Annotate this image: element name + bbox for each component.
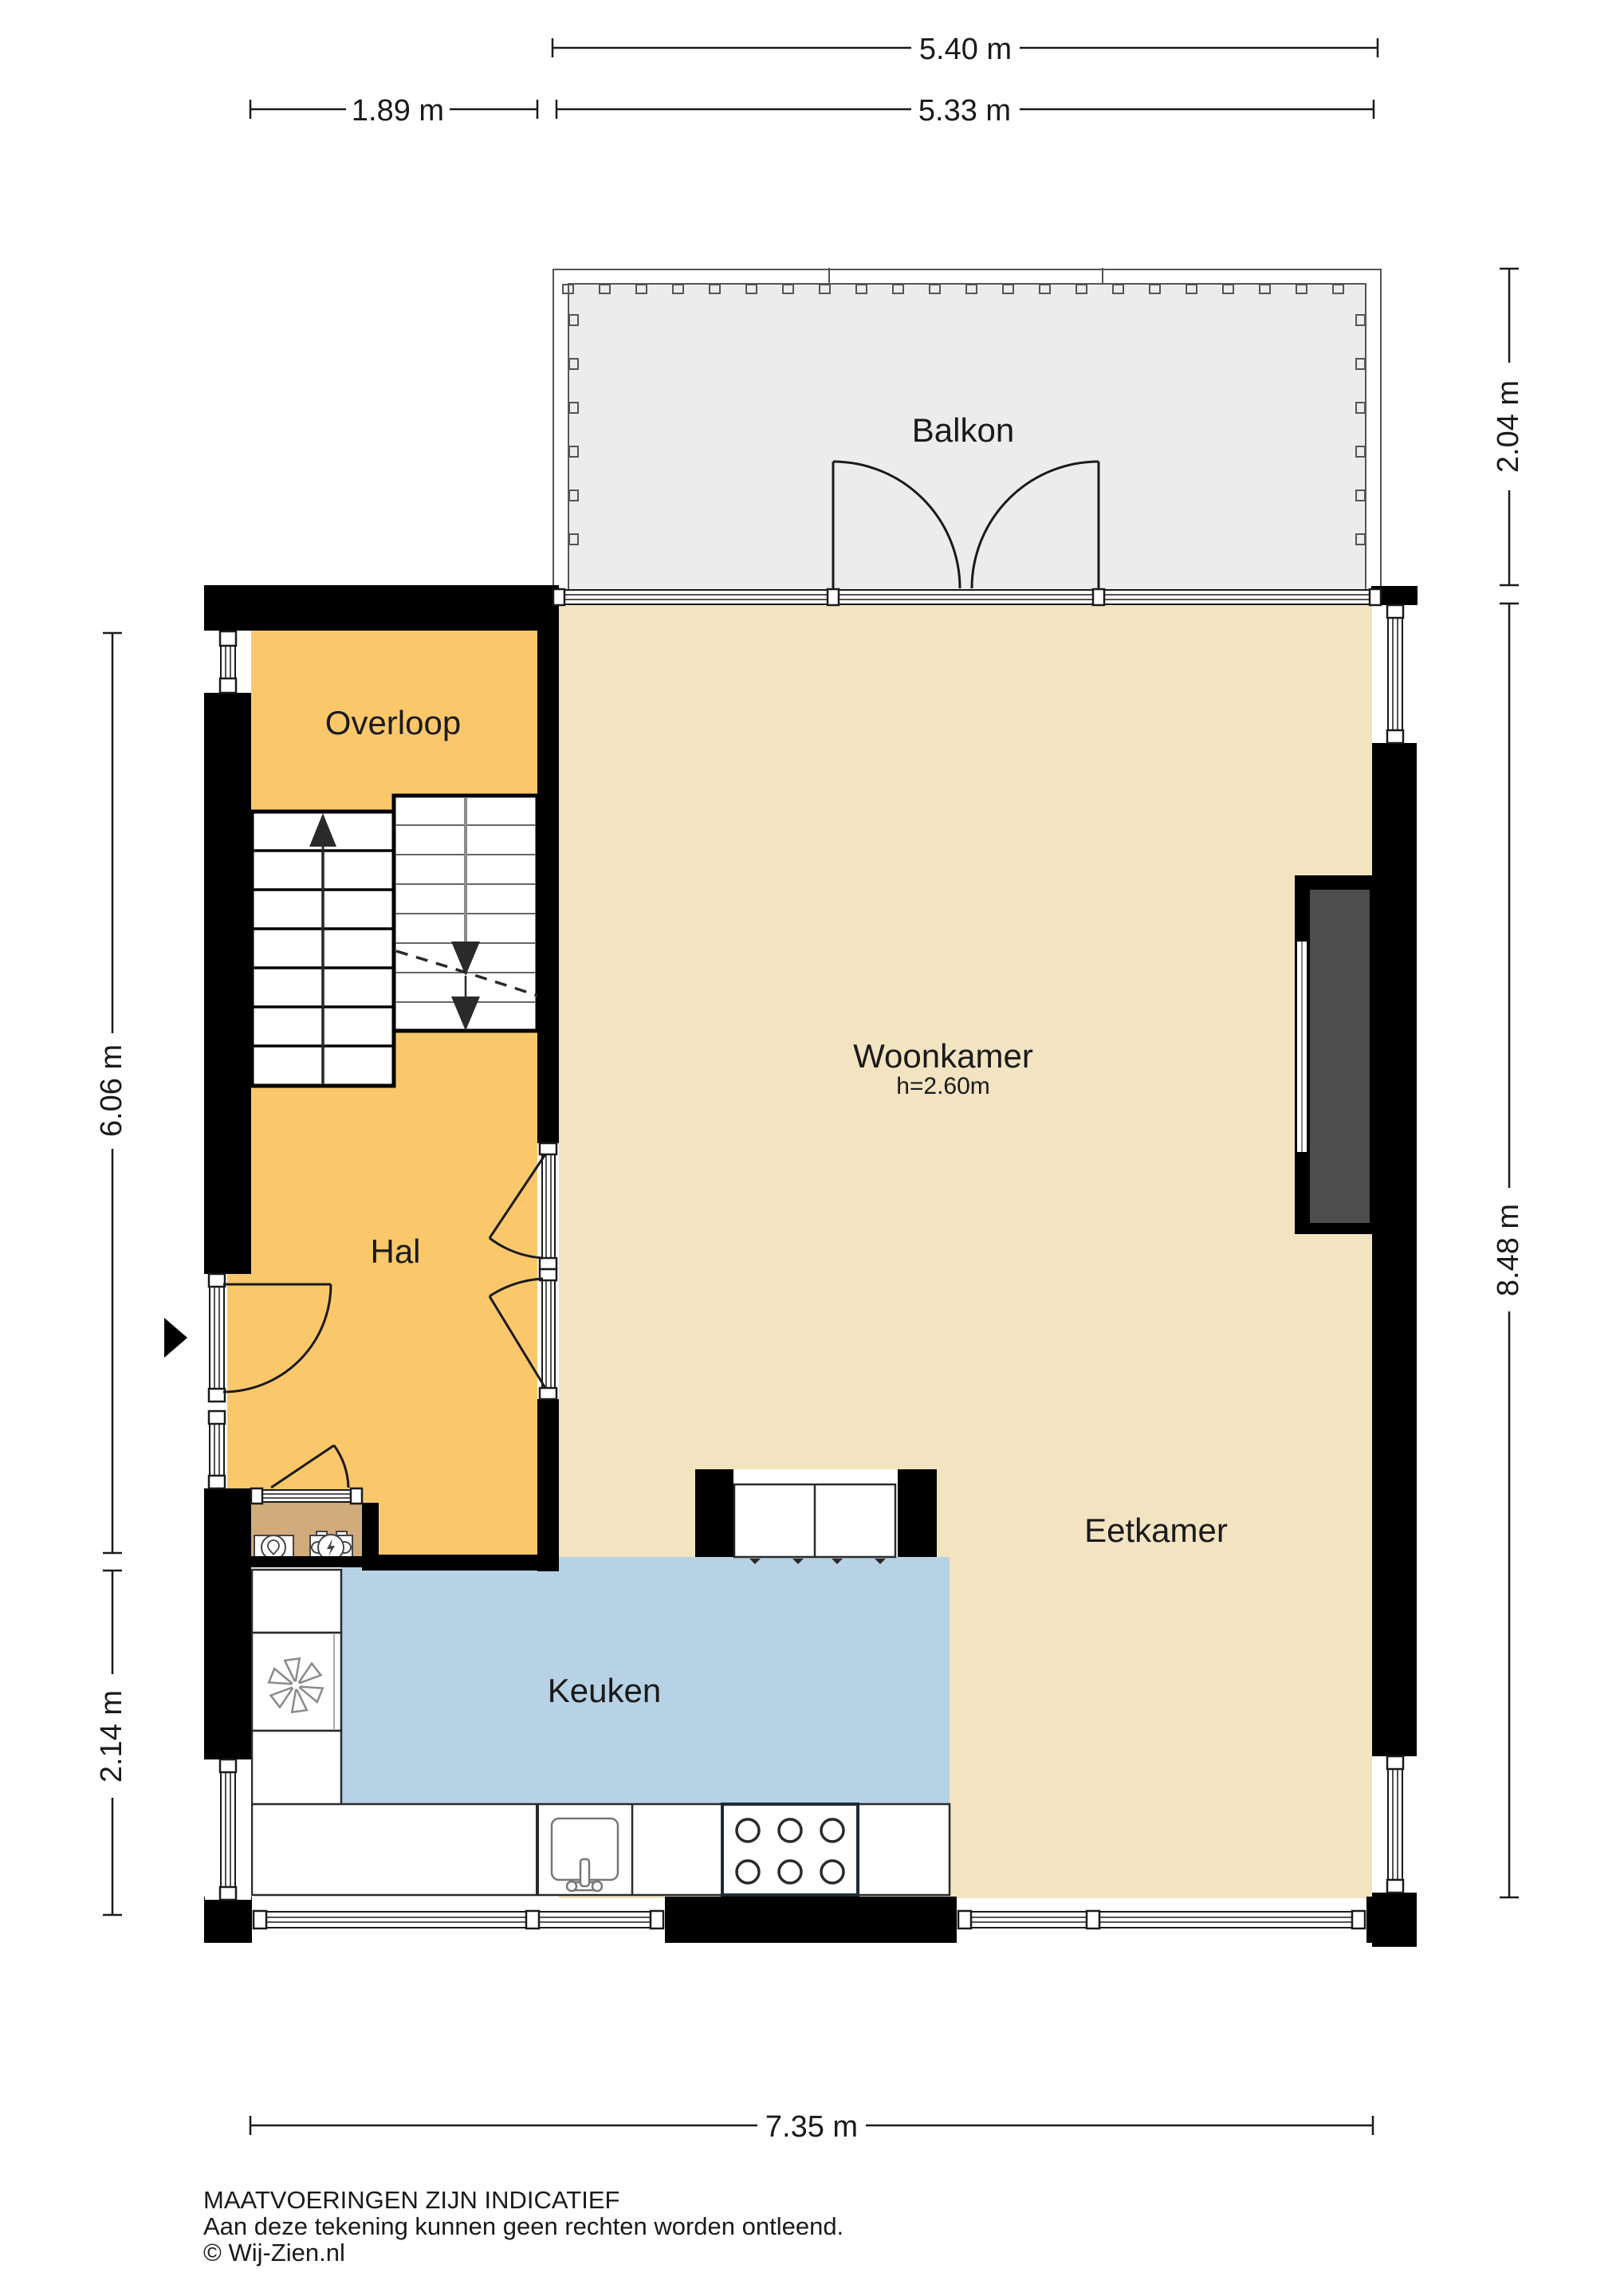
- svg-text:5.40 m: 5.40 m: [919, 33, 1012, 66]
- svg-text:h=2.60m: h=2.60m: [896, 1073, 990, 1099]
- svg-text:1.89 m: 1.89 m: [352, 94, 444, 128]
- svg-text:Overloop: Overloop: [325, 704, 461, 741]
- svg-text:6.06 m: 6.06 m: [95, 1044, 128, 1137]
- svg-text:2.14 m: 2.14 m: [95, 1690, 128, 1783]
- svg-text:7.35 m: 7.35 m: [765, 2110, 858, 2144]
- svg-text:Woonkamer: Woonkamer: [853, 1037, 1033, 1075]
- svg-text:Balkon: Balkon: [912, 411, 1014, 449]
- svg-text:Eetkamer: Eetkamer: [1084, 1512, 1228, 1549]
- svg-text:Keuken: Keuken: [548, 1672, 661, 1709]
- svg-text:MAATVOERINGEN ZIJN INDICATIEF: MAATVOERINGEN ZIJN INDICATIEF: [203, 2186, 619, 2214]
- svg-text:Hal: Hal: [370, 1233, 420, 1270]
- svg-text:© Wij-Zien.nl: © Wij-Zien.nl: [203, 2239, 345, 2267]
- svg-text:Aan deze tekening kunnen geen: Aan deze tekening kunnen geen rechten wo…: [203, 2212, 843, 2240]
- svg-text:2.04 m: 2.04 m: [1492, 380, 1525, 473]
- svg-text:8.48 m: 8.48 m: [1492, 1204, 1525, 1296]
- svg-text:5.33 m: 5.33 m: [918, 94, 1011, 128]
